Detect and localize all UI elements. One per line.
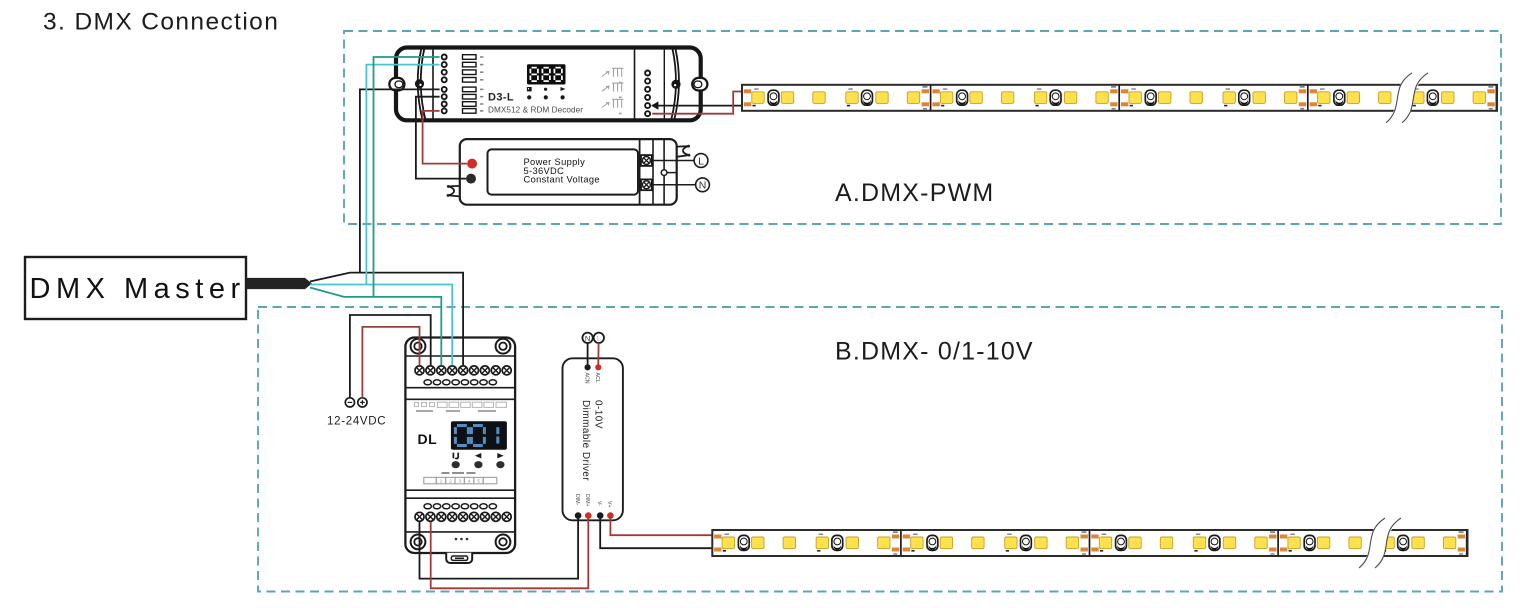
svg-text:V+: V+ xyxy=(606,501,612,508)
svg-text:DIM-: DIM- xyxy=(574,494,580,506)
svg-text:A.DMX-PWM: A.DMX-PWM xyxy=(835,179,994,207)
svg-text:ACL: ACL xyxy=(594,373,600,383)
svg-text:DMX Master: DMX Master xyxy=(30,273,246,305)
svg-text:12-24VDC: 12-24VDC xyxy=(327,416,386,428)
svg-text:3. DMX Connection: 3. DMX Connection xyxy=(43,9,279,36)
svg-text:N: N xyxy=(699,180,707,192)
svg-text:ACN: ACN xyxy=(583,373,589,384)
svg-text:L: L xyxy=(597,334,601,343)
svg-text:DIM+: DIM+ xyxy=(584,494,590,507)
svg-text:B.DMX- 0/1-10V: B.DMX- 0/1-10V xyxy=(835,338,1034,366)
svg-text:D3-L: D3-L xyxy=(488,92,514,104)
svg-text:V-: V- xyxy=(596,501,602,506)
svg-text:DL: DL xyxy=(418,431,438,447)
svg-text:N: N xyxy=(585,334,590,343)
svg-text:0-10V: 0-10V xyxy=(593,400,604,429)
svg-text:Dimmable Driver: Dimmable Driver xyxy=(580,400,591,481)
svg-text:DMX512 & RDM Decoder: DMX512 & RDM Decoder xyxy=(488,106,583,115)
svg-text:L: L xyxy=(698,155,704,167)
svg-text:Constant Voltage: Constant Voltage xyxy=(524,175,600,185)
